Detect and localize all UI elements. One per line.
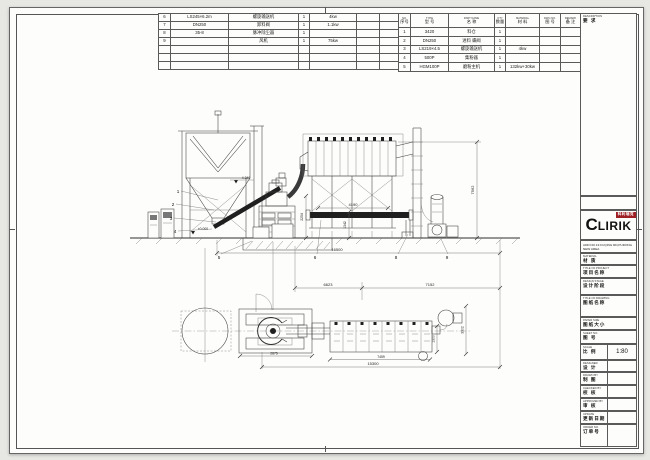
mill-reducer	[272, 224, 293, 238]
svg-text:1300: 1300	[432, 335, 436, 343]
mill-motor	[253, 227, 269, 238]
svg-text:1: 1	[177, 189, 180, 194]
svg-text:15300: 15300	[367, 361, 379, 366]
svg-text:2254: 2254	[300, 213, 304, 221]
svg-text:3: 3	[170, 216, 173, 221]
pulse-valves	[309, 137, 392, 141]
fan-unit	[428, 195, 458, 238]
svg-text:7152: 7152	[426, 282, 436, 287]
svg-text:7459: 7459	[377, 355, 385, 359]
collector-plan	[330, 310, 462, 361]
svg-text:6: 6	[314, 255, 317, 260]
svg-text:4.340: 4.340	[242, 176, 251, 180]
fan-motor-plan	[453, 313, 462, 323]
svg-text:8: 8	[395, 255, 398, 260]
svg-text:7562: 7562	[470, 185, 475, 195]
svg-text:1342: 1342	[343, 221, 347, 229]
svg-text:3302: 3302	[461, 326, 465, 334]
svg-text:4190: 4190	[349, 202, 359, 207]
balloons-elevation: 1 2 3 4 5 6 8 9	[170, 189, 449, 260]
level-marks: 4.340 ±0.000	[191, 176, 254, 235]
svg-text:4: 4	[174, 229, 177, 234]
feed-hopper	[178, 111, 264, 238]
svg-text:2: 2	[172, 202, 175, 207]
svg-text:±0.000: ±0.000	[198, 227, 208, 231]
fan-plan	[438, 310, 454, 326]
fan-motor	[447, 226, 458, 237]
ground-line	[130, 238, 520, 244]
svg-text:6623: 6623	[324, 282, 334, 287]
svg-text:16500: 16500	[331, 247, 343, 252]
electrical-cabinets	[148, 209, 174, 238]
svg-text:5: 5	[218, 255, 221, 260]
bag-filter	[300, 134, 413, 238]
svg-text:9: 9	[446, 255, 449, 260]
screenshot-canvas: 6 LS245×6.2m 螺旋输送机 1 4kw 7 DN250 卸料阀 1 1…	[0, 0, 650, 460]
exhaust-duct	[411, 128, 433, 238]
discharge-screw-conveyor	[306, 210, 413, 238]
filter-support	[309, 176, 396, 238]
dimensions-plan: 6623 7152 2875 7459 15300 3302 1300	[238, 246, 502, 369]
plant-layout-drawing: 4.340 ±0.000	[0, 0, 650, 460]
filter-outlet	[396, 142, 413, 158]
plan-view: 6623 7152 2875 7459 15300 3302 1300	[172, 242, 502, 369]
svg-text:2875: 2875	[270, 352, 278, 356]
